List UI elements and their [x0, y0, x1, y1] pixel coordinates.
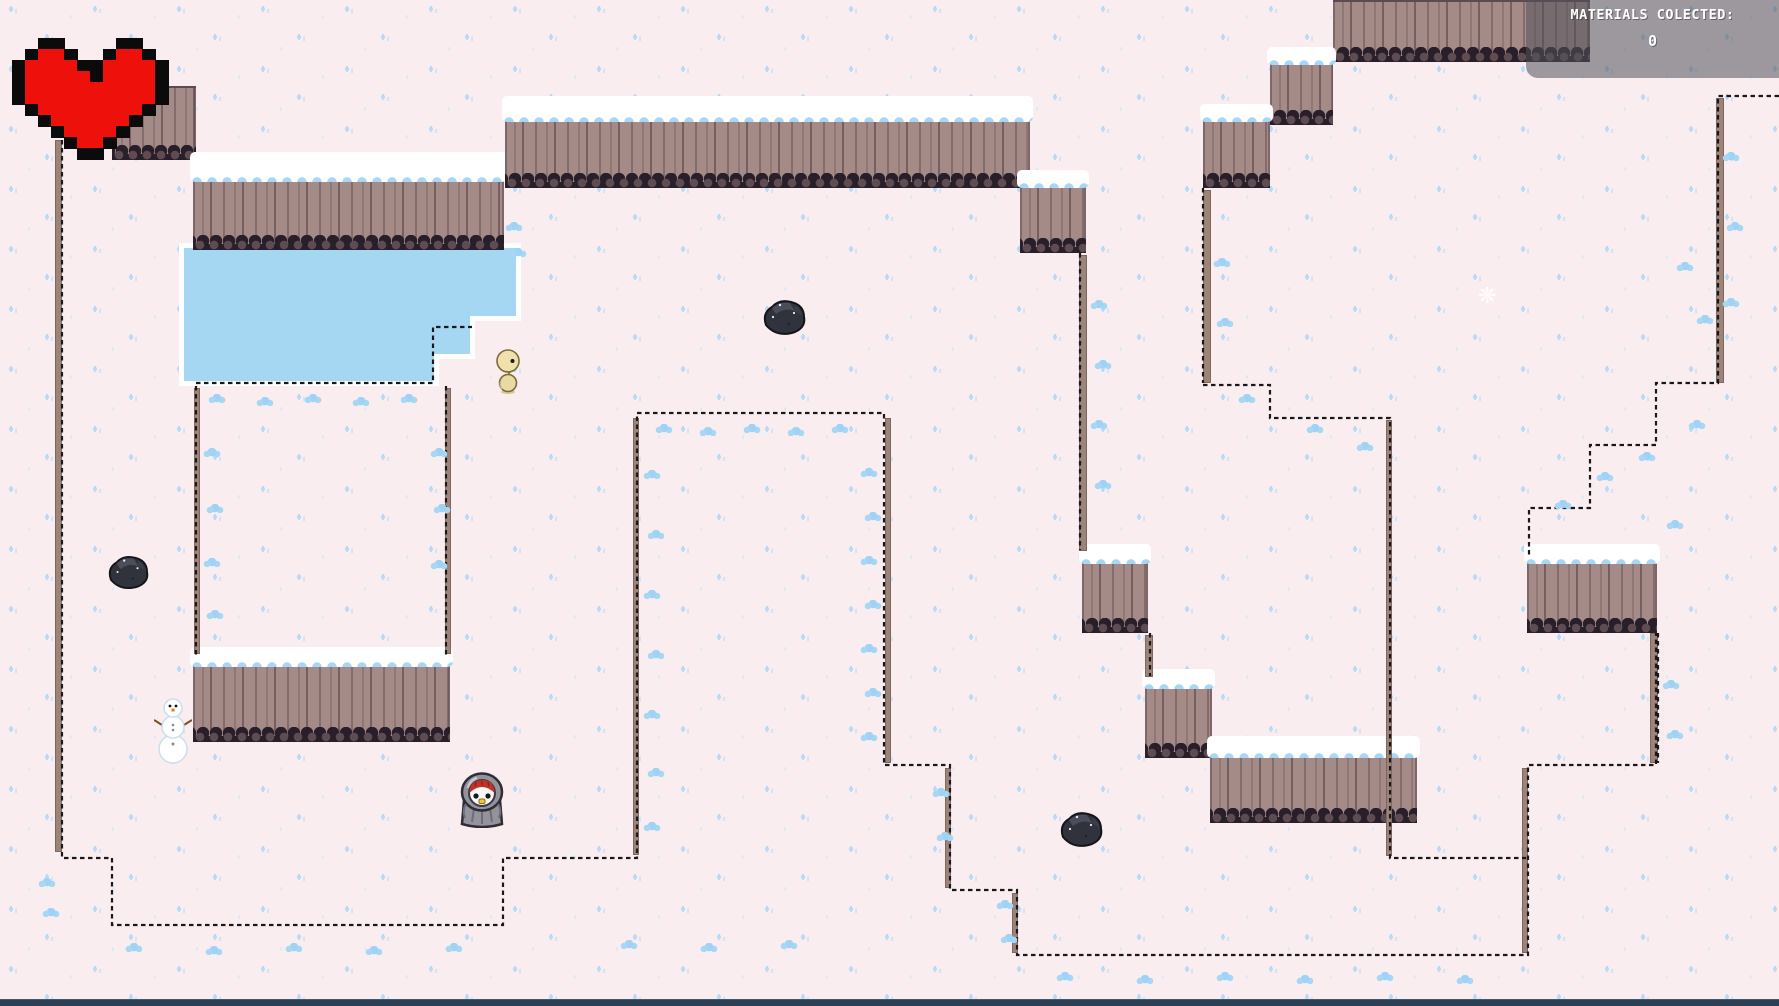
heart-pixel — [38, 82, 52, 94]
heart-pixel — [25, 60, 39, 72]
heart-pixel — [38, 104, 52, 116]
cliff-edge-sliver — [194, 388, 200, 654]
materials-label: MATERIALS COLECTED: — [1526, 7, 1779, 23]
ice-clump-icon — [864, 600, 882, 609]
cliff-face — [505, 102, 1030, 188]
ice-clump-icon — [1056, 972, 1074, 981]
ice-clump-icon — [864, 512, 882, 521]
heart-pixel — [12, 82, 26, 94]
pond-water — [184, 248, 516, 381]
ice-clump-icon — [1356, 442, 1374, 451]
heart-pixel — [64, 104, 78, 116]
ice-clump-icon — [655, 424, 673, 433]
heart-pixel — [103, 49, 117, 61]
ice-clump-icon — [509, 248, 527, 257]
heart-pixel — [64, 71, 78, 83]
ice-clump-icon — [1722, 152, 1740, 161]
heart-pixel — [116, 126, 130, 138]
ice-clump-icon — [620, 940, 638, 949]
heart-pixel — [129, 49, 143, 61]
ice-clump-icon — [643, 590, 661, 599]
snow-cap — [502, 96, 1033, 122]
ice-clump-icon — [1596, 472, 1614, 481]
heart-pixel — [129, 115, 143, 127]
ice-clump-icon — [1296, 975, 1314, 984]
ice-clump-icon — [700, 943, 718, 952]
heart-pixel — [103, 104, 117, 116]
heart-pixel — [116, 60, 130, 72]
cliff-face — [193, 158, 504, 250]
snowflake-sparkle-icon: ❋ — [1478, 286, 1496, 308]
heart-pixel — [142, 93, 156, 105]
heart-pixel — [116, 104, 130, 116]
heart-pixel — [90, 71, 104, 83]
heart-pixel — [51, 49, 65, 61]
terrain-dotted-edge — [196, 327, 472, 383]
ice-clump-icon — [1554, 500, 1572, 509]
snow-cap — [1079, 544, 1151, 564]
ice-clump-icon — [860, 556, 878, 565]
ice-clump-icon — [647, 530, 665, 539]
heart-pixel — [51, 104, 65, 116]
heart-pixel — [38, 71, 52, 83]
heart-pixel — [51, 115, 65, 127]
ice-clump-icon — [1090, 420, 1108, 429]
cliff-face — [1082, 550, 1148, 633]
heart-pixel — [12, 71, 26, 83]
heart-pixel — [103, 71, 117, 83]
heart-pixel — [51, 82, 65, 94]
heart-pixel — [77, 82, 91, 94]
heart-pixel — [90, 93, 104, 105]
ice-clump-icon — [743, 424, 761, 433]
cliff-bottom-edge — [1145, 743, 1212, 758]
heart-pixel — [64, 60, 78, 72]
heart-pixel — [90, 115, 104, 127]
heart-pixel — [64, 49, 78, 61]
heart-pixel — [51, 93, 65, 105]
heart-pixel — [77, 137, 91, 149]
snow-cap — [1200, 104, 1273, 122]
ice-clump-icon — [400, 394, 418, 403]
heart-pixel — [77, 60, 91, 72]
ice-clump-icon — [860, 468, 878, 477]
ice-clump-icon — [1722, 298, 1740, 307]
cliff-bottom-edge — [193, 727, 450, 742]
ice-clump-icon — [1688, 420, 1706, 429]
heart-pixel — [25, 104, 39, 116]
cliff-face — [1203, 110, 1270, 188]
heart-pixel — [129, 60, 143, 72]
heart-pixel — [129, 38, 143, 50]
heart-pixel — [25, 71, 39, 83]
heart-pixel — [12, 60, 26, 72]
ice-clump-icon — [996, 900, 1014, 909]
ice-clump-icon — [203, 448, 221, 457]
heart-pixel — [129, 104, 143, 116]
ice-clump-icon — [864, 688, 882, 697]
ice-clump-icon — [1638, 452, 1656, 461]
terrain-dotted-edge — [1529, 96, 1779, 556]
heart-pixel — [90, 126, 104, 138]
heart-pixel — [142, 82, 156, 94]
heart-pixel — [77, 126, 91, 138]
cliff-edge-sliver — [445, 388, 451, 654]
heart-pixel — [51, 126, 65, 138]
heart-pixel — [103, 60, 117, 72]
ice-clump-icon — [430, 560, 448, 569]
snowman — [154, 696, 192, 764]
ice-clump-icon — [256, 397, 274, 406]
ice-clump-icon — [205, 946, 223, 955]
heart-pixel — [129, 71, 143, 83]
ice-clump-icon — [1000, 934, 1018, 943]
ice-clump-icon — [1696, 315, 1714, 324]
heart-pixel — [129, 93, 143, 105]
cliff-face — [1270, 53, 1333, 125]
cliff-edge-sliver — [633, 418, 639, 855]
heart-pixel — [38, 38, 52, 50]
heart-pixel — [142, 60, 156, 72]
heart-pixel — [155, 93, 169, 105]
ice-clump-icon — [304, 394, 322, 403]
cliff-edge-sliver — [1079, 255, 1087, 551]
heart-pixel — [51, 71, 65, 83]
ice-clump-icon — [643, 470, 661, 479]
heart-pixel — [90, 148, 104, 160]
cliff-bottom-edge — [1020, 238, 1086, 253]
ice-clump-icon — [433, 504, 451, 513]
snow-cap — [190, 152, 507, 182]
ice-clump-icon — [208, 394, 226, 403]
cliff-edge-sliver — [1203, 190, 1211, 383]
ice-clump-icon — [365, 946, 383, 955]
game-viewport[interactable]: ❋ — [0, 0, 1779, 1006]
heart-pixel — [116, 71, 130, 83]
cliff-bottom-edge — [505, 173, 1030, 188]
ice-clump-icon — [647, 768, 665, 777]
ice-clump-icon — [125, 943, 143, 952]
cliff-face — [1020, 176, 1086, 253]
snow-cap — [1267, 47, 1336, 65]
cliff-edge-sliver — [945, 768, 951, 888]
heart-pixel — [116, 49, 130, 61]
cliff-edge-sliver — [1650, 633, 1658, 763]
ice-clump-icon — [206, 504, 224, 513]
ice-clump-icon — [430, 448, 448, 457]
snow-cap — [1524, 544, 1660, 564]
cliff-edge-sliver — [1386, 420, 1392, 856]
heart-pixel — [38, 115, 52, 127]
ice-clump-icon — [445, 943, 463, 952]
heart-pixel — [116, 82, 130, 94]
duck — [494, 348, 524, 394]
heart-pixel — [142, 104, 156, 116]
heart-pixel — [90, 60, 104, 72]
heart-pixel — [90, 137, 104, 149]
ice-clump-icon — [1094, 360, 1112, 369]
heart-pixel — [129, 82, 143, 94]
bottom-bar — [0, 999, 1779, 1006]
materials-count: 0 — [1526, 32, 1779, 50]
ice-clump-icon — [1238, 394, 1256, 403]
ice-clump-icon — [1726, 222, 1744, 231]
heart-pixel — [103, 82, 117, 94]
heart-pixel — [116, 38, 130, 50]
ice-clump-icon — [1666, 520, 1684, 529]
cliff-bottom-edge — [1082, 618, 1148, 633]
rock — [1056, 808, 1106, 850]
heart-pixel — [77, 93, 91, 105]
ice-clump-icon — [1136, 975, 1154, 984]
ice-clump-icon — [285, 943, 303, 952]
ice-clump-icon — [1376, 972, 1394, 981]
heart-pixel — [51, 38, 65, 50]
ice-clump-icon — [787, 427, 805, 436]
ice-clump-icon — [1456, 975, 1474, 984]
heart-pixel — [38, 60, 52, 72]
cliff-bottom-edge — [193, 235, 504, 250]
heart-pixel — [77, 115, 91, 127]
heart-pixel — [103, 115, 117, 127]
heart-pixel — [103, 137, 117, 149]
rock — [758, 296, 810, 338]
heart-pixel — [103, 93, 117, 105]
ice-clump-icon — [1662, 680, 1680, 689]
heart-pixel — [38, 49, 52, 61]
heart-pixel — [25, 93, 39, 105]
snow-cap — [1017, 170, 1089, 188]
heart-pixel — [155, 82, 169, 94]
ice-clump-icon — [860, 732, 878, 741]
heart-pixel — [77, 71, 91, 83]
cliff-face — [193, 653, 450, 742]
heart-pixel — [155, 71, 169, 83]
heart-pixel — [116, 93, 130, 105]
heart-pixel — [116, 115, 130, 127]
heart-pixel — [77, 104, 91, 116]
heart-pixel — [64, 137, 78, 149]
cliff-edge-sliver — [55, 140, 62, 852]
ice-clump-icon — [860, 644, 878, 653]
heart-pixel — [25, 49, 39, 61]
heart-pixel — [38, 93, 52, 105]
terrain-dotted-edge — [62, 132, 1656, 955]
ice-clump-icon — [206, 610, 224, 619]
ice-clump-icon — [1090, 300, 1108, 309]
ice-clump-icon — [42, 908, 60, 917]
heart-pixel — [51, 60, 65, 72]
ice-clump-icon — [352, 397, 370, 406]
ice-clump-icon — [699, 427, 717, 436]
ice-clump-icon — [38, 878, 56, 887]
ice-clump-icon — [1216, 318, 1234, 327]
cliff-edge-sliver — [1522, 768, 1528, 953]
heart-pixel — [90, 104, 104, 116]
heart-pixel — [12, 93, 26, 105]
ice-clump-icon — [932, 788, 950, 797]
cliff-edge-sliver — [1145, 635, 1153, 677]
snow-cap — [190, 647, 453, 667]
ice-clump-icon — [780, 940, 798, 949]
cliff-bottom-edge — [1527, 618, 1657, 633]
ice-clump-icon — [505, 222, 523, 231]
heart-pixel — [142, 49, 156, 61]
materials-panel: MATERIALS COLECTED: 0 — [1526, 0, 1779, 78]
health-heart-icon — [12, 38, 168, 159]
heart-pixel — [103, 126, 117, 138]
cliff-edge-sliver — [1716, 98, 1724, 383]
heart-pixel — [64, 126, 78, 138]
cliff-face — [1145, 675, 1212, 758]
cliff-face — [1527, 550, 1657, 633]
heart-pixel — [64, 82, 78, 94]
ice-clump-icon — [643, 822, 661, 831]
cliff-bottom-edge — [1270, 110, 1333, 125]
heart-pixel — [142, 71, 156, 83]
heart-pixel — [25, 82, 39, 94]
ice-clump-icon — [203, 558, 221, 567]
pond-rim — [179, 243, 521, 386]
ice-clump-icon — [831, 424, 849, 433]
heart-pixel — [90, 82, 104, 94]
heart-pixel — [64, 115, 78, 127]
heart-pixel — [77, 148, 91, 160]
heart-pixel — [155, 60, 169, 72]
player-character — [456, 770, 508, 828]
cliff-edge-sliver — [885, 418, 891, 763]
ice-clump-icon — [936, 832, 954, 841]
rock — [104, 552, 152, 592]
ice-clump-icon — [1216, 972, 1234, 981]
cliff-bottom-edge — [1203, 173, 1270, 188]
ice-clump-icon — [1094, 480, 1112, 489]
ice-clump-icon — [1213, 258, 1231, 267]
heart-pixel — [64, 93, 78, 105]
ice-clump-icon — [1676, 262, 1694, 271]
ice-clump-icon — [643, 710, 661, 719]
ice-clump-icon — [1306, 424, 1324, 433]
ice-clump-icon — [647, 650, 665, 659]
ice-clump-icon — [1666, 730, 1684, 739]
